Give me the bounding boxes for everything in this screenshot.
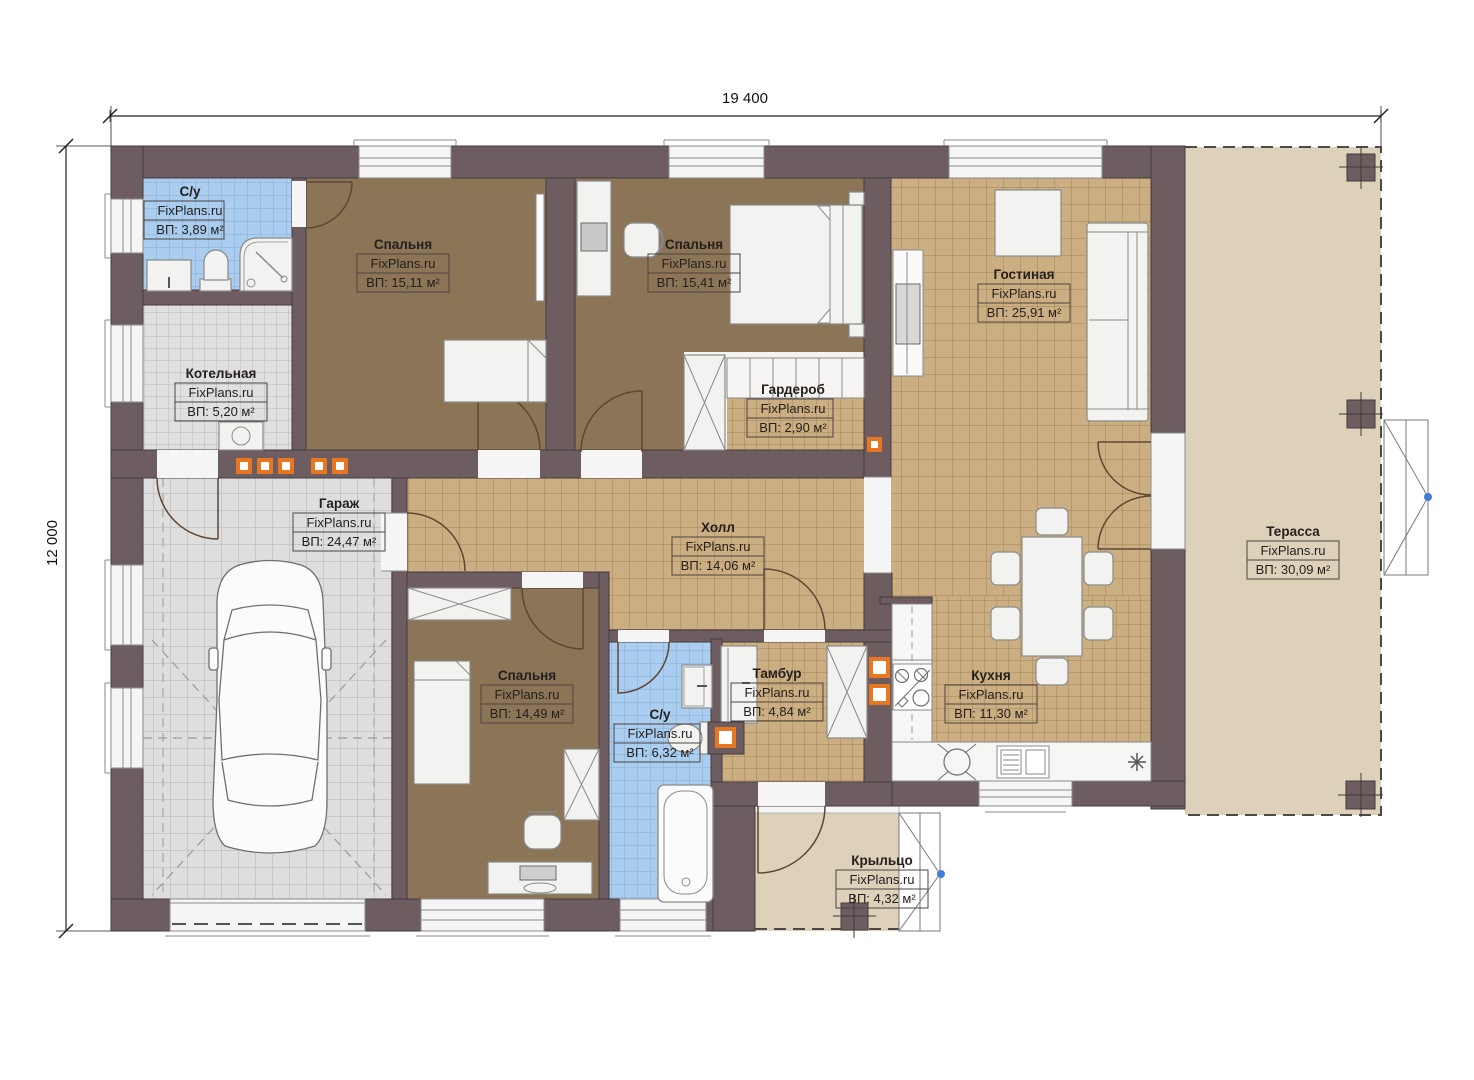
svg-text:ВП: 5,20 м²: ВП: 5,20 м² [187, 404, 255, 419]
svg-text:12 000: 12 000 [44, 520, 61, 566]
svg-text:Гардероб: Гардероб [761, 382, 825, 397]
svg-text:ВП: 2,90 м²: ВП: 2,90 м² [759, 420, 827, 435]
svg-text:Спальня: Спальня [665, 237, 723, 252]
svg-text:Котельная: Котельная [186, 366, 257, 381]
svg-text:Тамбур: Тамбур [753, 666, 802, 681]
svg-text:Спальня: Спальня [374, 237, 432, 252]
svg-text:ВП: 15,41 м²: ВП: 15,41 м² [657, 275, 732, 290]
svg-text:ВП: 4,32 м²: ВП: 4,32 м² [848, 891, 916, 906]
svg-text:FixPlans.ru: FixPlans.ru [627, 726, 692, 741]
svg-text:FixPlans.ru: FixPlans.ru [661, 256, 726, 271]
svg-text:19 400: 19 400 [722, 90, 768, 107]
svg-text:FixPlans.ru: FixPlans.ru [760, 401, 825, 416]
svg-text:FixPlans.ru: FixPlans.ru [1260, 543, 1325, 558]
svg-text:FixPlans.ru: FixPlans.ru [991, 286, 1056, 301]
svg-text:ВП: 25,91 м²: ВП: 25,91 м² [987, 305, 1062, 320]
svg-text:ВП: 6,32 м²: ВП: 6,32 м² [626, 745, 694, 760]
svg-text:Спальня: Спальня [498, 668, 556, 683]
svg-text:FixPlans.ru: FixPlans.ru [849, 872, 914, 887]
svg-text:ВП: 24,47 м²: ВП: 24,47 м² [302, 534, 377, 549]
svg-text:FixPlans.ru: FixPlans.ru [370, 256, 435, 271]
svg-text:FixPlans.ru: FixPlans.ru [744, 685, 809, 700]
svg-text:FixPlans.ru: FixPlans.ru [188, 385, 253, 400]
svg-text:FixPlans.ru: FixPlans.ru [958, 687, 1023, 702]
svg-text:FixPlans.ru: FixPlans.ru [685, 539, 750, 554]
svg-text:Гараж: Гараж [319, 496, 360, 511]
svg-text:ВП: 14,49 м²: ВП: 14,49 м² [490, 706, 565, 721]
svg-text:Крыльцо: Крыльцо [851, 853, 912, 868]
svg-text:ВП: 4,84 м²: ВП: 4,84 м² [743, 704, 811, 719]
svg-text:Гостиная: Гостиная [993, 267, 1054, 282]
svg-text:Терасса: Терасса [1266, 524, 1320, 539]
svg-text:FixPlans.ru: FixPlans.ru [494, 687, 559, 702]
svg-text:Кухня: Кухня [971, 668, 1010, 683]
svg-text:ВП: 30,09 м²: ВП: 30,09 м² [1256, 562, 1331, 577]
svg-text:FixPlans.ru: FixPlans.ru [157, 203, 222, 218]
svg-text:ВП: 15,11 м²: ВП: 15,11 м² [366, 275, 440, 290]
svg-text:Холл: Холл [701, 520, 735, 535]
svg-text:FixPlans.ru: FixPlans.ru [306, 515, 371, 530]
svg-text:ВП: 3,89 м²: ВП: 3,89 м² [156, 222, 224, 237]
svg-text:ВП: 11,30 м²: ВП: 11,30 м² [954, 706, 1028, 721]
svg-text:С/у: С/у [649, 707, 671, 722]
svg-text:ВП: 14,06 м²: ВП: 14,06 м² [681, 558, 756, 573]
svg-text:С/у: С/у [179, 184, 201, 199]
